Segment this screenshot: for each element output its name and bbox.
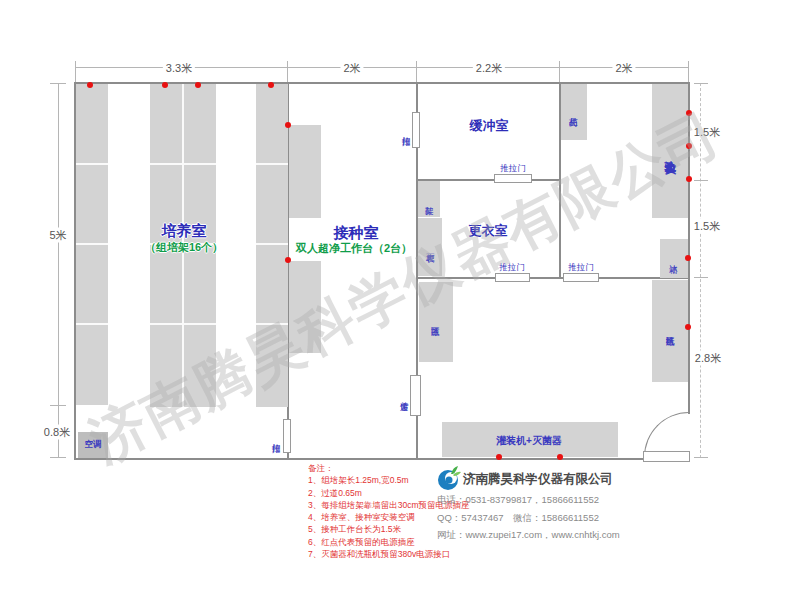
dim-top-3: 2.2米 [473, 61, 505, 76]
power-socket-dot [686, 176, 692, 182]
side-lab-bench-box [652, 84, 688, 218]
dim-tick [287, 61, 288, 83]
dim-top-1: 3.3米 [163, 61, 195, 76]
sliding-door [283, 419, 291, 453]
room-label-changing: 更衣室 [469, 222, 508, 240]
sliding-door [563, 273, 599, 282]
power-socket-dot [87, 82, 93, 88]
sliding-door-label: 推拉门 [568, 263, 594, 272]
sliding-door-label: 推拉门 [499, 263, 525, 272]
dim-tick [50, 457, 66, 458]
filling-sterilizer-label: 灌装机+灭菌器 [496, 435, 562, 446]
power-socket-dot [557, 454, 563, 460]
power-socket-dot [686, 143, 692, 149]
wardrobe-box [418, 218, 442, 276]
dim-tick [694, 277, 708, 278]
dim-tick [416, 61, 417, 83]
dim-tick [694, 457, 708, 458]
note-item: 7、灭菌器和洗瓶机预留380v电源接口 [308, 548, 470, 560]
dim-tick [50, 405, 66, 406]
power-socket-dot [195, 82, 201, 88]
culture-rack-column-1 [76, 84, 108, 405]
clean-bench-2 [289, 261, 321, 353]
dim-right-3: 2.8米 [692, 351, 724, 366]
company-website: 网址：www.zupei17.com，www.cnhtkj.com [437, 529, 620, 542]
dim-tick [694, 180, 708, 181]
dim-top-2: 2米 [340, 61, 363, 76]
dim-tick [559, 61, 560, 83]
sliding-door [494, 174, 532, 183]
room-label-culture: 培养室 [162, 222, 207, 241]
floorplan-canvas: 3.3米 2米 2.2米 2米 5米 0.8米 1.5米 1.5米 2.8米 空… [0, 0, 800, 600]
dim-top-4: 2米 [612, 61, 635, 76]
sliding-door [412, 112, 420, 148]
dim-left-1: 5米 [46, 228, 69, 243]
wall-changing-bottom [417, 277, 688, 279]
power-socket-dot [685, 255, 691, 261]
power-socket-dot [285, 257, 291, 263]
room-label-buffer: 缓冲室 [470, 117, 509, 135]
dim-tick [688, 61, 689, 83]
culture-rack-column-3 [256, 84, 288, 407]
company-logo-icon [436, 465, 462, 492]
sliding-door [495, 273, 530, 282]
dim-right-1: 1.5米 [691, 125, 723, 140]
bottle-washer-box [652, 280, 688, 382]
dim-tick [50, 83, 66, 84]
dim-right-2: 1.5米 [691, 219, 723, 234]
company-qq-wechat: QQ：57437467 微信：15866611552 [437, 512, 599, 525]
fridge-box [660, 239, 688, 278]
entry-door-leaf [643, 451, 690, 462]
medicine-cabinet-box [561, 84, 587, 140]
sliding-door-label: 推拉门 [500, 164, 526, 173]
transfer-window [410, 375, 421, 416]
power-socket-dot [162, 82, 168, 88]
company-name: 济南腾昊科学仪器有限公司 [463, 471, 613, 488]
power-socket-dot [686, 110, 692, 116]
dim-tick [694, 83, 708, 84]
room-sub-inoculation: 双人超净工作台（2台） [296, 241, 412, 256]
clean-bench-1 [289, 125, 321, 218]
left-dimension-line [58, 83, 59, 458]
power-socket-dot [685, 324, 691, 330]
room-sub-culture: （组培架16个） [145, 240, 223, 255]
dim-left-2: 0.8米 [41, 425, 73, 440]
power-socket-dot [496, 454, 502, 460]
company-phone: 电话：0531-83799817，15866611552 [437, 494, 599, 507]
shoe-rack-box [418, 181, 440, 217]
power-socket-dot [268, 82, 274, 88]
bottle-cooling-box [419, 282, 453, 362]
air-conditioner-label: 空调 [85, 440, 102, 449]
dim-tick [75, 61, 76, 83]
power-socket-dot [285, 122, 291, 128]
